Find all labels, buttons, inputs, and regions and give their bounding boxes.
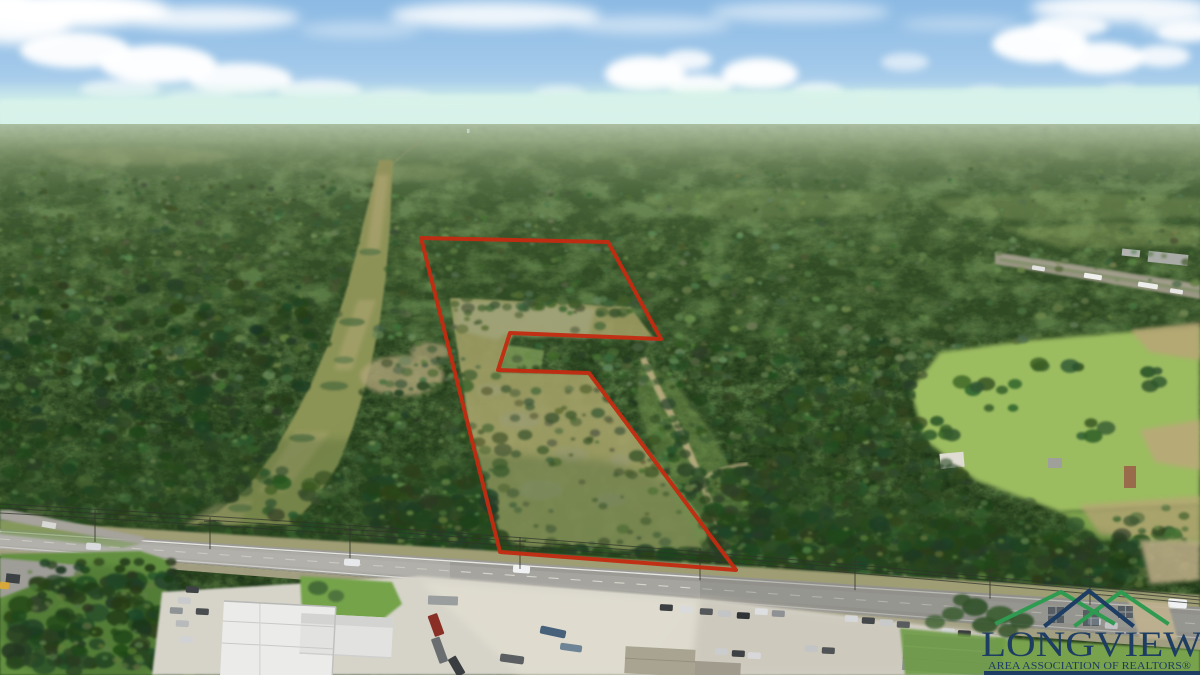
svg-text:LONGVIEW: LONGVIEW bbox=[981, 624, 1200, 664]
svg-text:AREA ASSOCIATION OF REALTORS®: AREA ASSOCIATION OF REALTORS® bbox=[988, 660, 1191, 672]
